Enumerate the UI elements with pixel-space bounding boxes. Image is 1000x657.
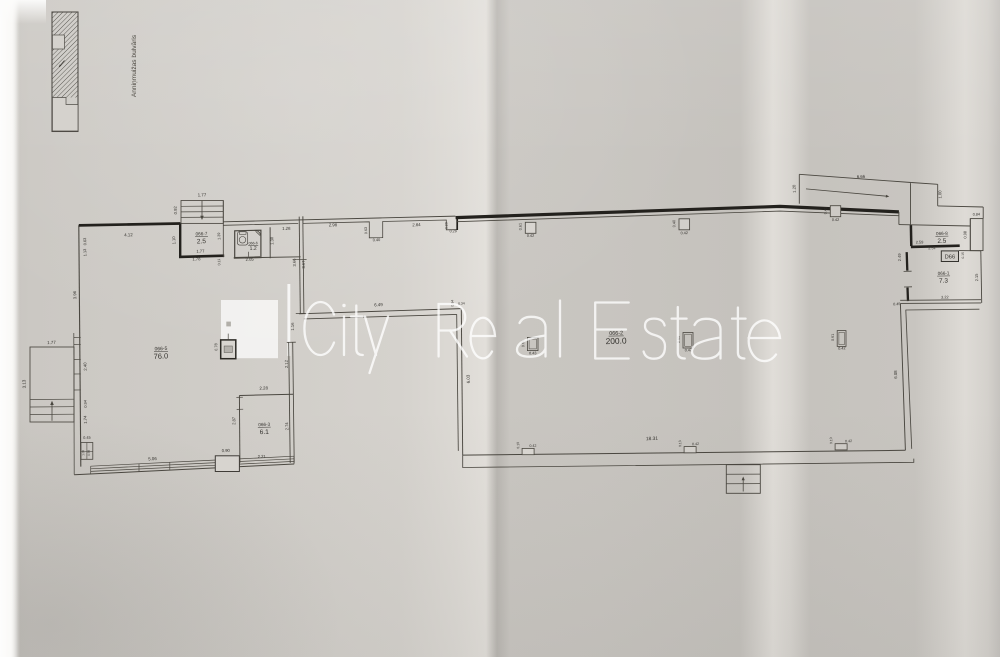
svg-text:1.77: 1.77 [47, 340, 56, 345]
svg-text:18.31: 18.31 [646, 436, 659, 442]
svg-text:6.08: 6.08 [893, 370, 898, 379]
svg-text:0.94: 0.94 [83, 399, 88, 408]
svg-text:3.22: 3.22 [941, 294, 949, 299]
svg-text:0.63: 0.63 [82, 238, 87, 246]
svg-text:1.10: 1.10 [171, 236, 176, 245]
svg-text:0.78: 0.78 [214, 343, 218, 351]
svg-text:0.61: 0.61 [831, 334, 835, 341]
svg-text:066-7: 066-7 [195, 231, 207, 236]
svg-text:0.98: 0.98 [87, 450, 91, 456]
svg-text:066-1: 066-1 [938, 271, 950, 276]
svg-text:200.0: 200.0 [605, 335, 627, 346]
svg-text:2.5: 2.5 [937, 238, 947, 245]
svg-text:0.29: 0.29 [444, 222, 448, 229]
svg-text:3.96: 3.96 [72, 290, 77, 299]
svg-text:2.49: 2.49 [897, 253, 902, 262]
svg-text:1.13: 1.13 [82, 249, 87, 257]
svg-text:1.2: 1.2 [249, 246, 257, 252]
svg-text:0.92: 0.92 [173, 206, 178, 215]
svg-text:0.84: 0.84 [973, 212, 981, 216]
svg-text:Anniņmuižas bulvāris: Anniņmuižas bulvāris [131, 34, 138, 97]
svg-text:0.15: 0.15 [961, 252, 965, 259]
svg-text:6.1: 6.1 [260, 429, 270, 436]
svg-text:1.20: 1.20 [791, 184, 796, 193]
svg-text:0.10: 0.10 [516, 442, 520, 449]
svg-text:3.13: 3.13 [21, 379, 26, 388]
svg-text:2.28: 2.28 [259, 385, 268, 390]
svg-text:0.43: 0.43 [529, 351, 537, 355]
svg-text:2.5: 2.5 [197, 238, 207, 245]
svg-text:2.12: 2.12 [284, 359, 289, 368]
svg-text:1.05: 1.05 [81, 450, 85, 456]
svg-text:0.45: 0.45 [83, 436, 91, 440]
svg-text:0.40: 0.40 [373, 237, 382, 242]
svg-text:0.10: 0.10 [829, 437, 833, 444]
svg-text:0.63: 0.63 [364, 227, 368, 234]
svg-text:7.3: 7.3 [939, 277, 949, 284]
svg-text:6.66: 6.66 [857, 174, 866, 179]
svg-text:0.42: 0.42 [845, 439, 852, 443]
svg-text:1.39: 1.39 [217, 232, 221, 240]
svg-text:1.16: 1.16 [290, 322, 295, 331]
svg-text:3.67: 3.67 [301, 260, 306, 269]
svg-text:066-3: 066-3 [258, 422, 270, 427]
svg-text:0.42: 0.42 [680, 231, 688, 235]
svg-text:1.00: 1.00 [937, 190, 942, 199]
svg-text:0.42: 0.42 [832, 218, 840, 222]
svg-text:1.77: 1.77 [198, 192, 207, 197]
svg-text:6.03: 6.03 [466, 374, 471, 383]
svg-text:0.42: 0.42 [527, 234, 535, 238]
svg-text:2.87: 2.87 [231, 416, 236, 425]
svg-text:2.21: 2.21 [258, 454, 267, 459]
svg-text:2.98: 2.98 [329, 222, 338, 227]
svg-text:0.45: 0.45 [893, 302, 900, 306]
svg-text:2.51: 2.51 [928, 245, 936, 250]
svg-text:2.40: 2.40 [82, 362, 87, 371]
svg-text:0.40: 0.40 [672, 220, 676, 228]
svg-text:4.12: 4.12 [124, 232, 133, 237]
svg-text:2.15: 2.15 [974, 273, 979, 282]
svg-text:1.28: 1.28 [282, 226, 291, 231]
svg-text:0.90: 0.90 [222, 448, 231, 453]
svg-text:1.30: 1.30 [269, 236, 274, 245]
svg-text:0.42: 0.42 [529, 444, 536, 448]
svg-text:1.78: 1.78 [192, 256, 201, 261]
svg-text:0.13: 0.13 [678, 440, 682, 447]
svg-text:0.41: 0.41 [823, 207, 827, 215]
svg-text:066-8: 066-8 [936, 231, 948, 236]
svg-text:5.06: 5.06 [148, 456, 157, 461]
svg-text:D66: D66 [945, 254, 955, 260]
svg-text:0.42: 0.42 [838, 346, 846, 350]
svg-text:2.05: 2.05 [245, 257, 254, 262]
svg-text:76.0: 76.0 [154, 351, 169, 360]
svg-text:3.66: 3.66 [292, 258, 297, 267]
svg-text:0.42: 0.42 [692, 442, 699, 446]
svg-text:0.28: 0.28 [449, 229, 456, 233]
svg-text:2.59: 2.59 [916, 239, 924, 244]
svg-text:1.74: 1.74 [83, 415, 88, 424]
svg-text:0.98: 0.98 [962, 231, 967, 239]
svg-text:2.74: 2.74 [284, 422, 289, 431]
svg-text:1.77: 1.77 [196, 248, 205, 253]
svg-text:0.11: 0.11 [217, 259, 221, 266]
svg-text:0.61: 0.61 [518, 223, 522, 231]
svg-text:6.49: 6.49 [374, 302, 383, 307]
svg-text:2.84: 2.84 [412, 222, 421, 227]
